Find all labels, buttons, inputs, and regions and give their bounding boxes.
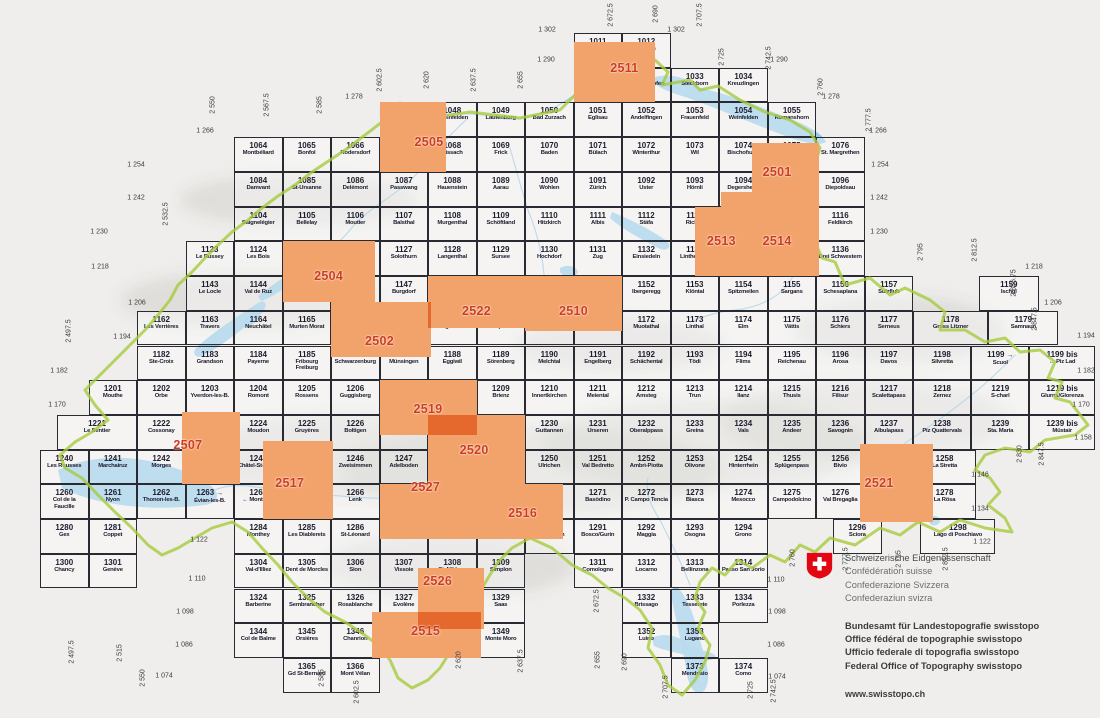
map-sheet-1298: 1298Lago di Poschiavo [920,519,995,554]
map-sheet-1151: 1151Rigi [574,276,623,311]
map-sheet-1193: 1193Tödi [671,346,720,381]
map-sheet-1291: 1291Bosco/Gurin [574,519,623,554]
map-sheet-1144: 1144Val de Ruz [234,276,283,311]
map-sheet-1269: 1269Aletschgletscher [477,484,526,519]
map-sheet-1047: 1047Basel [380,102,429,137]
map-sheet-1209: 1209Brienz [477,380,526,415]
map-sheet-1050: 1050Bad Zurzach [525,102,574,137]
map-sheet-1074: 1074Bischofszell [719,137,768,172]
map-sheet-1237: 1237Albulapass [865,415,914,450]
map-sheet-1179: 1179Samnaun [988,311,1058,346]
map-sheet-1091: 1091Zürich [574,172,623,207]
map-sheet-1275: 1275Campodolcino [768,484,817,519]
map-sheet-1052: 1052Andelfingen [622,102,671,137]
map-sheet-1055: 1055Romanshorn [768,102,817,137]
map-sheet-1177: 1177Serneus [865,311,914,346]
map-sheet-1109: 1109Schöftland [477,207,526,242]
map-sheet-1218: 1218Zernez [913,380,971,415]
map-sheet-1285: 1285Les Diablerets [283,519,332,554]
map-sheet-1212: 1212Amsteg [622,380,671,415]
map-sheet-1173: 1173Linthal [671,311,720,346]
map-sheet-1184: 1184Payerne [234,346,283,381]
map-sheet-1280: 1280Gex [40,519,89,554]
map-sheet-1190: 1190Melchtal [525,346,574,381]
map-sheet-1145: 1145Bielersee [283,276,332,311]
map-sheet-1251: 1251Val Bedretto [574,450,623,485]
map-sheet-1334: 1334Porlezza [719,589,768,624]
map-sheet-1225: 1225Gruyères [283,415,332,450]
map-sheet-1049: 1049Laufenburg [477,102,526,137]
map-sheet-1277: 1277Piz Bernina [865,484,914,519]
map-sheet-1234: 1234Vals [719,415,768,450]
map-sheet-1300: 1300Chancy [40,554,89,589]
map-sheet-1032: 1032Diessenhofen [622,68,671,103]
map-sheet-1349: 1349Monte Moro [477,623,526,658]
office-line: Ufficio federale di topografia swisstopo [845,646,1096,659]
map-sheet-1235: 1235Andeer [768,415,817,450]
map-sheet-1126: 1126Büren a. A. [331,241,380,276]
map-sheet-1065: 1065Bonfol [283,137,332,172]
map-sheet-1131: 1131Zug [574,241,623,276]
map-sheet-1309: 1309Simplon [477,554,526,589]
map-sheet-1238: 1238Piz Quattervals [913,415,971,450]
map-sheet-1231: 1231Urseren [574,415,623,450]
map-sheet-1228: 1228Lauterbrunnen [428,415,477,450]
map-sheet-1214: 1214Ilanz [719,380,768,415]
office-line: Federal Office of Topography swisstopo [845,660,1096,673]
map-sheet-1271: 1271Basòdino [574,484,623,519]
map-sheet-1206: 1206Guggisberg [331,380,380,415]
map-sheet-1328: 1328Randa [428,589,477,624]
map-sheet-1239-bis: 1239 bisMüstair [1029,415,1095,450]
map-sheet-1094: 1094Degersheim [719,172,768,207]
map-sheet-1113: 1113Ricken [671,207,720,242]
map-sheet-1222: 1222Cossonay [137,415,186,450]
map-sheet-1287: 1287Sierre [380,519,429,554]
map-sheet-1143: 1143Le Locle [186,276,235,311]
map-sheet-1219-bis: 1219 bisGlurns/Glorenza [1029,380,1095,415]
map-sheet-1186: 1186Schwarzenburg [331,346,380,381]
map-sheet-1153: 1153Klöntal [671,276,720,311]
map-sheet-1149: 1149Wolhusen [477,276,526,311]
map-sheet-1127: 1127Solothurn [380,241,429,276]
map-sheet-1147: 1147Burgdorf [380,276,429,311]
map-sheet-1374: 1374Como [719,658,768,693]
map-sheet-1308: 1308St. Niklaus [428,554,477,589]
map-sheet-1175: 1175Vättis [768,311,817,346]
map-sheet-1154: 1154Spitzmeilen [719,276,768,311]
confederation-line: Confederazione Svizzera [845,579,991,592]
map-sheet-1069: 1069Frick [477,137,526,172]
map-sheet-1182: 1182Ste-Croix [137,346,186,381]
map-sheet-1289: 1289Brig [477,519,526,554]
map-sheet-1232: 1232Oberalppass [622,415,671,450]
map-sheet-1110: 1110Hitzkirch [525,207,574,242]
map-sheet-1245: 1245Château-d'Oex [283,450,332,485]
map-sheet-1236: 1236Savognin [816,415,865,450]
map-sheet-1278: 1278La Rösa [913,484,976,519]
map-sheet-1104: 1104Saignelégier [234,207,283,242]
map-sheet-1197: 1197Davos [865,346,914,381]
map-sheet-1172: 1172Muotathal [622,311,671,346]
map-sheet-1307: 1307Vissoie [380,554,429,589]
map-sheet-1092: 1092Uster [622,172,671,207]
map-sheet-1224: 1224Moudon [234,415,283,450]
map-sheet-1163: 1163Travers [186,311,235,346]
map-sheet-1093: 1093Hörnli [671,172,720,207]
map-sheet-1258: 1258La Stretta [913,450,976,485]
map-sheet-1344: 1344Col de Balme [234,623,283,658]
map-sheet-1146: 1146Lyss [331,276,380,311]
map-sheet-1284: 1284Monthey [234,519,283,554]
map-sheet-1070: 1070Baden [525,137,574,172]
map-sheet-1096: 1096Diepoldsau [816,172,865,207]
map-sheet-1204: 1204Romont [234,380,283,415]
map-sheet-1202: 1202Orbe [137,380,186,415]
map-sheet-1216: 1216Filisur [816,380,865,415]
map-sheet-1217: 1217Scalettapass [865,380,914,415]
map-sheet-1229: 1229Grindelwald [477,415,526,450]
map-sheet-1205: 1205Rossens [283,380,332,415]
map-sheet-1306: 1306Sion [331,554,380,589]
map-sheet-1051: 1051Eglisau [574,102,623,137]
map-sheet-1152: 1152Ibergeregg [622,276,671,311]
map-sheet-1108: 1108Murgenthal [428,207,477,242]
map-sheet-1296: 1296Sciora [833,519,882,554]
map-sheet-1292: 1292Maggia [622,519,671,554]
map-sheet-1348: 1348Zermatt [428,623,477,658]
map-sheet-1135: 1135Buchs [768,241,817,276]
map-sheet-1188: 1188Eggiwil [428,346,477,381]
map-sheet-index: 1011Beggingen1012Singen1031Neunkirch1032… [0,0,1100,718]
map-sheet-1148: 1148Sumiswald [428,276,477,311]
map-sheet-1071: 1071Bülach [574,137,623,172]
map-sheet-1130: 1130Hochdorf [525,241,574,276]
map-sheet-1171: 1171Beckenried [574,311,623,346]
map-sheet-1347: 1347Matterhorn [380,623,429,658]
map-sheet-1265: 1265Les Mosses [283,484,332,519]
map-sheet-1125: 1125Chasseral [283,241,332,276]
map-sheet-1114: 1114Nesslau [719,207,768,242]
map-sheet-1136: 1136Drei Schwestern [816,241,865,276]
map-sheet-1086: 1086Delémont [331,172,380,207]
map-sheet-1011: 1011Beggingen [574,33,623,68]
map-sheet-1169: 1169Schüpfheim [477,311,526,346]
map-sheet-1252: 1252Ambrì-Piotta [622,450,671,485]
map-sheet-1301: 1301Genève [89,554,138,589]
map-sheet-1165: 1165Murten Morat [283,311,332,346]
map-sheet-1261: 1261Nyon [89,484,138,519]
map-sheet-1187: 1187Münsingen [380,346,429,381]
map-sheet-1255: 1255Splügenpass [768,450,817,485]
map-sheet-1233: 1233Greina [671,415,720,450]
map-sheet-1106: 1106Moutier [331,207,380,242]
map-sheet-1288: 1288Raron [428,519,477,554]
map-sheet-1313: 1313Bellinzona [671,554,720,589]
map-sheet-1085: 1085St-Ursanne [283,172,332,207]
map-sheet-1332: 1332Brissago [622,589,671,624]
map-sheet-1211: 1211Meiental [574,380,623,415]
map-sheet-1196: 1196Arosa [816,346,865,381]
map-sheet-1242: 1242Morges [137,450,186,485]
map-sheet-1132: 1132Einsiedeln [622,241,671,276]
confederation-line: Confédération suisse [845,565,991,578]
confederation-line: Confederaziun svizra [845,592,991,605]
map-sheet-1210: 1210Innertkirchen [525,380,574,415]
map-sheet-1324: 1324Barberine [234,589,283,624]
map-sheet-1248: 1248Mürren [428,450,477,485]
map-sheet-1095: 1095Gais [768,172,817,207]
map-sheet-1262: 1262Thonon-les-B. [137,484,186,519]
map-sheet-1183: 1183Grandson [186,346,235,381]
map-sheet-1243: 1243Lausanne [186,450,235,485]
map-sheet-1346: 1346Chanrion [331,623,380,658]
map-sheet-1156: 1156Schesaplana [816,276,865,311]
map-sheet-1223: 1223Echallens [186,415,235,450]
map-sheet-1089: 1089Aarau [477,172,526,207]
map-sheet-1215: 1215Thusis [768,380,817,415]
map-sheet-1290: 1290Helsenhorn [525,519,574,554]
map-sheet-1327: 1327Evolène [380,589,429,624]
map-sheet-1263: 1263 →Évian-les-B. [186,484,235,519]
map-sheet-1053: 1053Frauenfeld [671,102,720,137]
map-sheet-1115: 1115Säntis [768,207,817,242]
map-sheet-1116: 1116Feldkirch [816,207,865,242]
map-sheet-1034: 1034Kreuzlingen [719,68,768,103]
map-sheet-1241: 1241Marchairuz [89,450,138,485]
map-sheet-1031: 1031Neunkirch [574,68,623,103]
swisstopo-url-link[interactable]: www.swisstopo.ch [845,689,1096,699]
map-sheet-1150: 1150Luzern [525,276,574,311]
map-sheet-1112: 1112Stäfa [622,207,671,242]
map-sheet-1250: 1250Ulrichen [525,450,574,485]
map-sheet-1198: 1198Silvretta [913,346,971,381]
map-sheet-1294: 1294Grono [719,519,768,554]
map-sheet-1159: 1159Ischgl [979,276,1040,311]
map-sheet-1203: 1203Yverdon-les-B. [186,380,235,415]
map-sheet-1033: 1033Steckborn [671,68,720,103]
map-sheet-1264: 1264← Montreux [234,484,283,519]
map-sheet-1155: 1155Sargans [768,276,817,311]
map-sheet-1274: 1274Mesocco [719,484,768,519]
map-sheet-1168: 1168Langnau i. E. [428,311,477,346]
map-sheet-1312: 1312Locarno [622,554,671,589]
map-sheet-1260: 1260Col de la Faucille [40,484,89,519]
map-sheet-1366: 1366Mont Vélan [331,658,380,693]
map-sheet-1246: 1246Zweisimmen [331,450,380,485]
map-sheet-1329: 1329Saas [477,589,526,624]
map-sheet-1073: 1073Wil [671,137,720,172]
map-sheet-1048: 1048Rheinfelden [428,102,477,137]
map-sheet-1195: 1195Reichenau [768,346,817,381]
map-sheet-1207: 1207Thun [380,380,429,415]
map-sheet-1305: 1305Dent de Morcles [283,554,332,589]
map-sheet-1208: 1208Beatenberg [428,380,477,415]
map-sheet-1189: 1189Sörenberg [477,346,526,381]
map-sheet-1072: 1072Winterthur [622,137,671,172]
map-sheet-1075: 1075Rorschach [768,137,817,172]
map-sheet-1054: 1054Weinfelden [719,102,768,137]
office-names: Bundesamt für Landestopografie swisstopo… [845,620,1096,674]
map-sheet-1088: 1088Hauenstein [428,172,477,207]
map-sheet-1266: 1266Lenk [331,484,380,519]
map-sheet-1365: 1365Gd St-Bernard [283,658,332,693]
map-sheet-1192: 1192Schächental [622,346,671,381]
map-sheet-1239: 1239Sta. Maria [971,415,1029,450]
map-sheet-1166: 1166Bern [331,311,380,346]
map-sheet-1257: 1257St. Moritz [865,450,914,485]
map-sheet-1064: 1064Montbéliard [234,137,283,172]
map-sheet-1012: 1012Singen [622,33,671,68]
map-sheet-1157: 1157Sulzfluh [865,276,914,311]
swiss-coat-of-arms-icon [806,552,833,579]
map-sheet-1276: 1276Val Bregaglia [816,484,865,519]
map-sheet-1201: 1201Mouthe [89,380,138,415]
map-sheet-1286: 1286St-Léonard [331,519,380,554]
map-sheet-1185: 1185Fribourg Freiburg [283,346,332,381]
map-sheet-1345: 1345Orsières [283,623,332,658]
map-sheet-1087: 1087Passwang [380,172,429,207]
map-sheet-1254: 1254Hinterrhein [719,450,768,485]
map-sheet-1213: 1213Trun [671,380,720,415]
map-sheet-1272: 1272P. Campo Tencia [622,484,671,519]
map-sheet-1281: 1281Coppet [89,519,138,554]
map-sheet-1240: 1240Les Rousses [40,450,89,485]
map-sheet-1134: 1134Walensee [719,241,768,276]
map-sheet-1333: 1333Tesserete [671,589,720,624]
map-sheet-1249: 1249Finsteraarhorn [477,450,526,485]
map-sheet-1167: 1167Worb [380,311,429,346]
map-sheet-1247: 1247Adelboden [380,450,429,485]
map-sheet-1164: 1164Neuchâtel [234,311,283,346]
map-sheet-1191: 1191Engelberg [574,346,623,381]
map-sheet-1170: 1170Alpnach [525,311,574,346]
map-sheet-1325: 1325Sembrancher [283,589,332,624]
map-sheet-1194: 1194Flims [719,346,768,381]
map-sheet-1253: 1253Olivone [671,450,720,485]
map-sheet-1373: 1373Mendrisio [671,658,720,693]
map-sheet-1221: 1221Le Sentier [57,415,137,450]
map-sheet-1176: 1176Schiers [816,311,865,346]
map-sheet-1066: 1066Rodersdorf [331,137,380,172]
map-sheet-1111: 1111Albis [574,207,623,242]
office-line: Bundesamt für Landestopografie swisstopo [845,620,1096,633]
map-sheet-1084: 1084Damvant [234,172,283,207]
map-sheet-1199: 1199 →Scuol [971,346,1029,381]
map-sheet-1267: 1267Gemmi [380,484,429,519]
map-sheet-1268: 1268Lötschental [428,484,477,519]
confederation-names: Schweizerische EidgenossenschaftConfédér… [845,552,991,606]
map-sheet-1293: 1293Osogna [671,519,720,554]
swisstopo-legend: Schweizerische EidgenossenschaftConfédér… [806,552,1096,699]
map-sheet-1128: 1128Langenthal [428,241,477,276]
map-sheet-1178: 1178Gross Litzner [913,311,988,346]
map-sheet-1230: 1230Guttannen [525,415,574,450]
map-sheet-1352: 1352Luino [622,623,671,658]
map-sheet-1353: 1353Lugano [671,623,720,658]
map-sheet-1067: 1067Arlesheim [380,137,429,172]
map-sheet-1304: 1304Val-d'Illiez [234,554,283,589]
map-sheet-1244: 1244Châtel-St-Denis [234,450,283,485]
confederation-line: Schweizerische Eidgenossenschaft [845,552,991,565]
map-sheet-1314: 1314Passo San Jorio [719,554,768,589]
map-sheet-1311: 1311Comologno [574,554,623,589]
map-sheet-1162: 1162Les Verrières [137,311,186,346]
map-sheet-1174: 1174Elm [719,311,768,346]
office-line: Office fédéral de topographie swisstopo [845,633,1096,646]
map-sheet-1219: 1219S-charl [971,380,1029,415]
map-sheet-1227: 1227Niesen [380,415,429,450]
map-sheet-1124: 1124Les Bois [234,241,283,276]
map-sheet-1090: 1090Wohlen [525,172,574,207]
map-sheet-1273: 1273Biasca [671,484,720,519]
map-sheet-1256: 1256Bivio [816,450,865,485]
map-sheet-1105: 1105Bellelay [283,207,332,242]
map-sheet-1226: 1226Boltigen [331,415,380,450]
map-sheet-1326: 1326Rosablanche [331,589,380,624]
map-sheet-1270: 1270Binntal [525,484,574,519]
map-sheet-1076: 1076St. Margrethen [816,137,865,172]
map-sheet-1123: 1123Le Russey [186,241,235,276]
map-sheet-1107: 1107Balsthal [380,207,429,242]
map-sheet-1199-bis: 1199 bis← Piz Lad [1029,346,1095,381]
map-sheet-1068: 1068Sissach [428,137,477,172]
map-sheet-1133: 1133Linthebene [671,241,720,276]
map-sheet-1129: 1129Sursee [477,241,526,276]
